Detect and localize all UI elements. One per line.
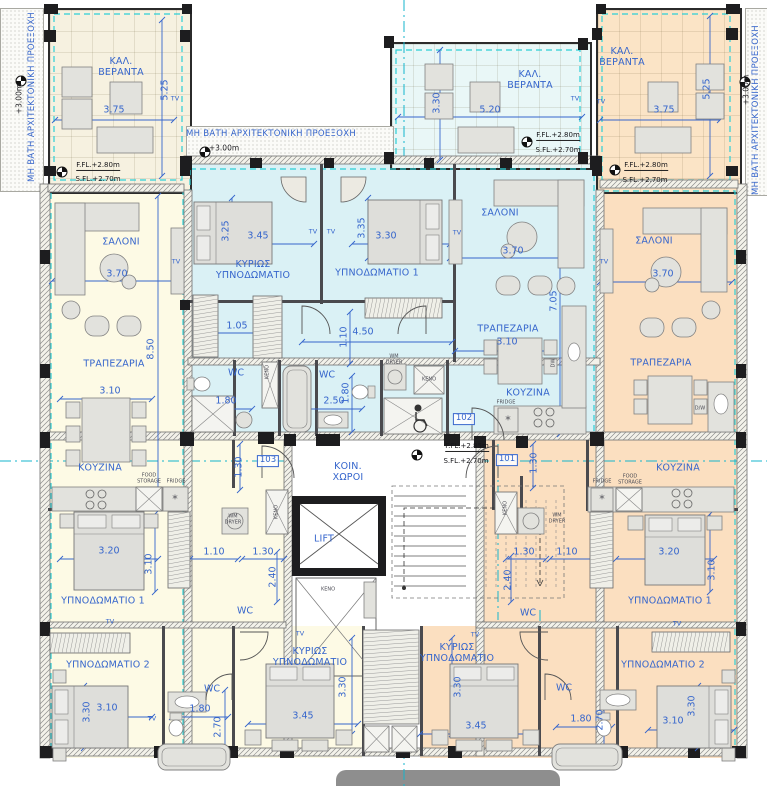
room-label: ΚΟΙΝ. ΧΩΡΟΙ [333, 462, 364, 484]
dimension-label: 8.50 [147, 338, 158, 359]
appliance-label: D/W [695, 406, 705, 412]
annotation-label: ΜΗ ΒΑΤΗ ΑΡΧΙΤΕΚΤΟΝΙΚΗ ΠΡΟΕΞΟΧΗ [752, 25, 762, 195]
room-label: WC [228, 369, 244, 380]
dimension-label: 3.30 [433, 92, 444, 113]
appliance-label: ΚΕΝΟ [274, 505, 280, 519]
level-label: S.FL.+2.70m [75, 175, 120, 183]
room-label: ΚΑΛ. ΒΕΡΑΝΤΑ [599, 47, 645, 69]
tv-label: TV [148, 715, 156, 722]
dimension-label: 1.80 [215, 397, 236, 408]
dimension-label: 3.10 [708, 559, 719, 580]
room-label: ΚΥΡΙΩΣ ΥΠΝΟΔΩΜΑΤΙΟ [420, 643, 494, 665]
room-label: ΥΠΝΟΔΩΜΑΤΙΟ 1 [628, 597, 712, 608]
tv-label: TV [673, 620, 681, 627]
room-label: WC [237, 607, 253, 618]
dimension-label: 1.30 [235, 456, 246, 477]
room-label: ΚΟΥΖΙΝΑ [78, 464, 122, 475]
tv-label: TV [309, 228, 317, 235]
floor-plan: ΜΗ ΒΑΤΗ ΑΡΧΙΤΕΚΤΟΝΙΚΗ ΠΡΟΕΞΟΧΗ+3.00mΜΗ Β… [0, 0, 767, 786]
dimension-label: 2.40 [504, 569, 515, 590]
appliance-label: ΚΕΝΟ [503, 501, 509, 515]
dimension-label: 3.10 [662, 717, 683, 728]
appliance-label: FOOD STORAGE [137, 474, 161, 485]
dimension-label: 7.05 [550, 290, 561, 311]
door-tag: 103 [257, 455, 279, 467]
appliance-label: DW [551, 359, 557, 368]
level-label: S.FL.+2.70m [622, 176, 667, 184]
annotation-label: +3.00m [209, 145, 239, 154]
dimension-label: 3.35 [358, 217, 369, 238]
door-tag: 101 [496, 454, 518, 466]
room-label: ΚΥΡΙΩΣ ΥΠΝΟΔΩΜΑΤΙΟ [216, 260, 290, 282]
room-label: WC [520, 609, 536, 620]
room-label: WC [319, 371, 335, 382]
appliance-label: FRIDGE [167, 479, 186, 485]
room-label: ΤΡΑΠΕΖΑΡΙΑ [630, 359, 691, 370]
tv-label: TV [597, 98, 605, 105]
dimension-label: 3.70 [502, 247, 523, 258]
room-label: WC [204, 685, 220, 696]
tv-label: TV [172, 258, 180, 265]
level-label: F.FL.+2.80m [624, 161, 668, 171]
dimension-label: 1.80 [189, 705, 210, 716]
tv-label: TV [471, 631, 479, 638]
annotation-label: +3.00m [743, 75, 752, 105]
annotation-label: +3.00m [16, 84, 25, 114]
level-label: S.FL.+2.70m [443, 457, 488, 465]
room-label: ΚΑΛ. ΒΕΡΑΝΤΑ [507, 70, 553, 92]
room-label: LIFT [314, 535, 334, 546]
dimension-label: 3.30 [83, 701, 94, 722]
fridge-symbol: * [599, 494, 605, 507]
dimension-label: 1.30 [530, 452, 541, 473]
appliance-label: WM DRYER [386, 355, 403, 366]
dimension-label: 1.10 [556, 548, 577, 559]
dimension-label: 3.70 [652, 270, 673, 281]
dimension-label: 1.05 [226, 322, 247, 333]
room-label: ΚΑΛ. ΒΕΡΑΝΤΑ [98, 57, 144, 79]
dimension-label: 2.70 [214, 716, 225, 737]
level-label: F.FL.+2.80m [76, 161, 120, 171]
dimension-label: 3.10 [96, 704, 117, 715]
dimension-label: 1.80 [570, 715, 591, 726]
dimension-label: 3.45 [247, 232, 268, 243]
room-label: ΥΠΝΟΔΩΜΑΤΙΟ 2 [621, 661, 705, 672]
fridge-symbol: * [172, 494, 178, 507]
room-label: ΤΡΑΠΕΖΑΡΙΑ [477, 325, 538, 336]
dimension-label: 4.50 [352, 328, 373, 339]
dimension-label: 5.25 [703, 78, 714, 99]
dimension-label: 3.20 [658, 548, 679, 559]
dimension-label: 1.30 [513, 548, 534, 559]
dimension-label: 3.30 [375, 232, 396, 243]
tv-label: TV [571, 95, 579, 102]
dimension-label: 2.70 [596, 709, 607, 730]
annotation-label: ΜΗ ΒΑΤΗ ΑΡΧΙΤΕΚΤΟΝΙΚΗ ΠΡΟΕΞΟΧΗ [28, 12, 38, 182]
door-tag: 102 [453, 413, 475, 425]
appliance-label: WM DRYER [549, 514, 566, 525]
room-label: WC [556, 684, 572, 695]
room-label: ΣΑΛΟΝΙ [102, 238, 140, 249]
level-label: F.FL.+2.85m [445, 442, 489, 452]
appliance-label: FRIDGE [593, 479, 612, 485]
labels-layer: ΜΗ ΒΑΤΗ ΑΡΧΙΤΕΚΤΟΝΙΚΗ ΠΡΟΕΞΟΧΗ+3.00mΜΗ Β… [0, 0, 767, 786]
room-label: ΚΟΥΖΙΝΑ [506, 389, 550, 400]
dimension-label: 3.75 [653, 106, 674, 117]
room-label: ΚΥΡΙΩΣ ΥΠΝΟΔΩΜΑΤΙΟ [273, 647, 347, 669]
dimension-label: 3.30 [454, 676, 465, 697]
tv-label: TV [296, 630, 304, 637]
tv-label: TV [106, 618, 114, 625]
dimension-label: 3.10 [145, 553, 156, 574]
dimension-label: 3.10 [99, 387, 120, 398]
room-label: ΣΑΛΟΝΙ [481, 209, 519, 220]
appliance-label: FOOD STORAGE [618, 475, 642, 486]
appliance-label: WM DRYER [225, 515, 242, 526]
dimension-label: 1.30 [252, 548, 273, 559]
appliance-label: FRIDGE [497, 400, 516, 406]
dimension-label: 3.70 [106, 270, 127, 281]
dimension-label: 3.10 [496, 338, 517, 349]
dimension-label: 2.40 [269, 566, 280, 587]
appliance-label: ΚΕΝΟ [321, 587, 335, 593]
dimension-label: 3.75 [103, 106, 124, 117]
room-label: ΚΟΥΖΙΝΑ [656, 464, 700, 475]
room-label: ΣΑΛΟΝΙ [635, 237, 673, 248]
tv-label: TV [453, 229, 461, 236]
dimension-label: 3.45 [465, 722, 486, 733]
dimension-label: 1.10 [203, 548, 224, 559]
dimension-label: 5.20 [479, 106, 500, 117]
tv-label: TV [327, 228, 335, 235]
dimension-label: 1.80 [342, 382, 353, 403]
room-label: ΤΡΑΠΕΖΑΡΙΑ [83, 360, 144, 371]
level-label: S.FL.+2.70m [535, 146, 580, 154]
dimension-label: 1.10 [340, 326, 351, 347]
room-label: ΥΠΝΟΔΩΜΑΤΙΟ 1 [61, 597, 145, 608]
tv-label: TV [600, 258, 608, 265]
dimension-label: 3.30 [339, 676, 350, 697]
annotation-label: ΜΗ ΒΑΤΗ ΑΡΧΙΤΕΚΤΟΝΙΚΗ ΠΡΟΕΞΟΧΗ [186, 130, 356, 140]
fridge-symbol: * [505, 415, 511, 428]
dimension-label: 3.45 [292, 712, 313, 723]
tv-label: TV [171, 95, 179, 102]
appliance-label: ΚΕΝΟ [422, 377, 436, 383]
dimension-label: 3.25 [222, 220, 233, 241]
appliance-label: ΚΕΝΟ [265, 365, 271, 379]
dimension-label: 3.20 [98, 547, 119, 558]
room-label: ΥΠΝΟΔΩΜΑΤΙΟ 1 [335, 269, 419, 280]
level-label: F.FL.+2.80m [536, 131, 580, 141]
dimension-label: 3.30 [688, 695, 699, 716]
room-label: ΥΠΝΟΔΩΜΑΤΙΟ 2 [66, 661, 150, 672]
